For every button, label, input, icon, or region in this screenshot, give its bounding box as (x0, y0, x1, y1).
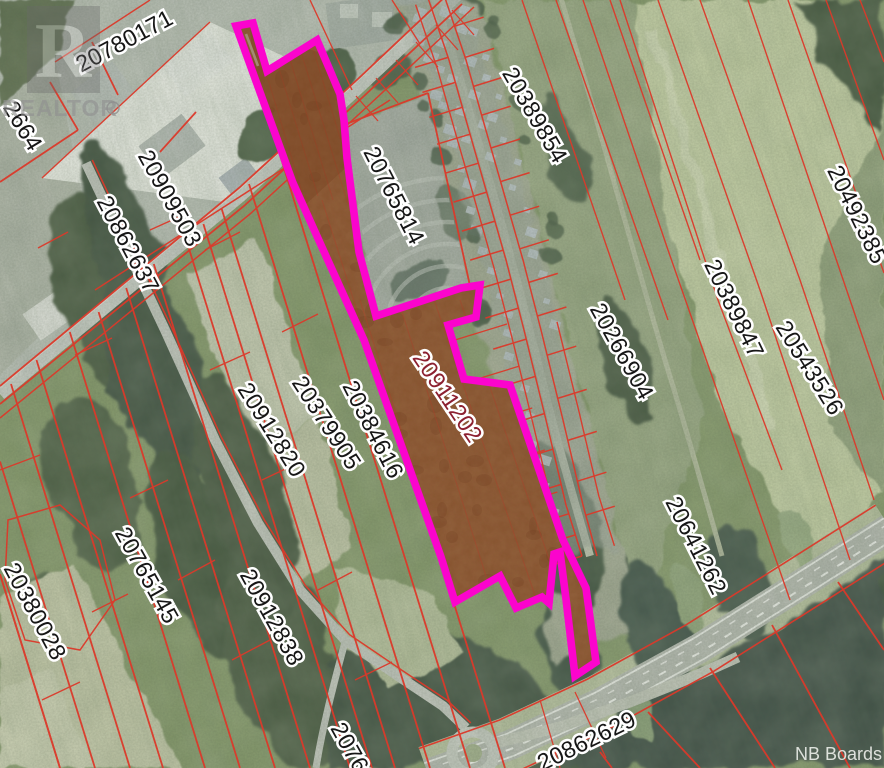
svg-text:R: R (35, 7, 93, 94)
svg-text:NB Boards: NB Boards (795, 744, 882, 764)
svg-text:REALTOR: REALTOR (2, 95, 118, 121)
